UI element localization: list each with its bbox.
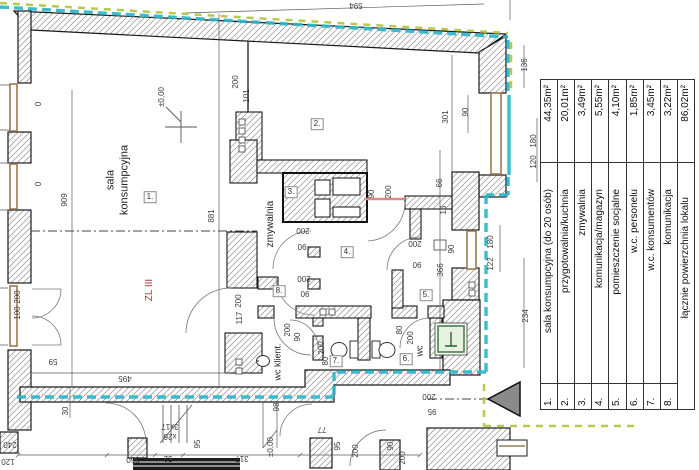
legend-cell: sala konsumpcyjna (do 20 osób) [541,163,558,384]
legend-cell: 1,85m² [626,80,643,163]
legend-cell: w.c. konsumentów [643,163,660,384]
stairs [160,405,192,443]
legend-cell: zmywalnia [575,163,592,384]
washbasin-icon [256,356,270,367]
legend-cell: przygotowalnia/kuchnia [558,163,575,384]
legend-row: 1.sala konsumpcyjna (do 20 osób)44,35m² [541,80,558,410]
sink-unit [283,173,367,222]
electrical-box-icon [435,323,467,355]
legend-cell: w.c. personelu [626,163,643,384]
legend-row: 5.pomieszczenie socjalne4,10m² [609,80,626,410]
legend-cell: komunikacja [660,163,677,384]
legend-cell: 5. [609,384,626,410]
legend-cell: 20,01m² [558,80,575,163]
legend-cell: komunikacja/magazyn [592,163,609,384]
legend-cell: 3,49m² [575,80,592,163]
interior-walls [225,112,452,373]
legend-cell: 3,22m² [660,80,677,163]
legend: 1.sala konsumpcyjna (do 20 osób)44,35m²2… [540,80,695,410]
legend-row: 7.w.c. konsumentów3,45m² [643,80,660,410]
legend-table: 1.sala konsumpcyjna (do 20 osób)44,35m²2… [540,79,695,410]
legend-cell: pomieszczenie socjalne [609,163,626,384]
legend-cell: 44,35m² [541,80,558,163]
legend-row: 8.komunikacja3,22m² [660,80,677,410]
toilet-icon [372,341,395,358]
legend-cell: 7. [643,384,660,410]
legend-row: 3.zmywalnia3,49m² [575,80,592,410]
toilet-icon [331,341,358,358]
legend-total-area: 86,02m² [677,80,694,163]
legend-row: 2.przygotowalnia/kuchnia20,01m² [558,80,575,410]
legend-cell: 3,45m² [643,80,660,163]
legend-cell: 3. [575,384,592,410]
entrance-arrow-icon [488,382,520,416]
legend-cell: 5,55m² [592,80,609,163]
lower-window-notch [497,440,527,456]
legend-total-row: łącznie powierzchnia lokalu86,02m² [677,80,694,410]
legend-cell: 6. [626,384,643,410]
legend-row: 4.komunikacja/magazyn5,55m² [592,80,609,410]
legend-cell: 8. [660,384,677,410]
stair-band [133,458,240,470]
legend-cell: 1. [541,384,558,410]
floor-plan-drawing: 594200101909881±0,0000200100594953024012… [0,0,699,470]
legend-cell: 2. [558,384,575,410]
legend-row: 6.w.c. personelu1,85m² [626,80,643,410]
legend-total-label: łącznie powierzchnia lokalu [677,163,694,410]
legend-cell: 4. [592,384,609,410]
legend-cell: 4,10m² [609,80,626,163]
elevation-marker [165,107,197,143]
